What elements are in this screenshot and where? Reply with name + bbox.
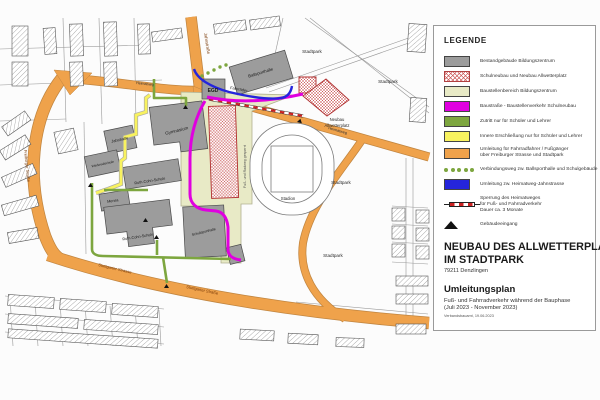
- legend-label: Umleitung zw. Heimatweg-Jahnstrasse: [480, 182, 564, 188]
- legend-item-verbindungsweg: Verbindungsweg zw. Ballsporthalle und Sc…: [444, 162, 595, 177]
- legend-item-innere-erschliessung: Innere Erschließung nur für Schüler und …: [444, 129, 595, 144]
- swatch-umleitung-heimatweg: [444, 179, 470, 190]
- swatch-baustrasse: [444, 101, 470, 112]
- label-stadtpark-2: Stadtpark: [378, 79, 398, 84]
- plan-address: 79211 Denzlingen: [444, 268, 595, 274]
- label-neubau-line2: Allwetterplatz: [325, 123, 350, 128]
- plan-description-2: (Juli 2023 - November 2023): [444, 305, 595, 311]
- label-stadtpark-4: Stadtpark: [323, 253, 343, 258]
- label-egd: EGD: [208, 88, 219, 94]
- legend-item-schulneubau: Schulneubau und Neubau Allwetterplatz: [444, 69, 595, 84]
- label-stadtpark-3: Stadtpark: [331, 180, 351, 185]
- legend-item-bestand: Bestandgebäude Bildungszentrum: [444, 54, 595, 69]
- label-stadtpark-1: Stadtpark: [302, 49, 322, 54]
- legend-panel: LEGENDE Bestandgebäude Bildungszentrum S…: [433, 25, 596, 331]
- plan-title-line2: IM STADTPARK: [444, 254, 595, 267]
- legend-item-zutritt: Zutritt nur für Schüler und Lehrer: [444, 114, 595, 129]
- swatch-verbindungsweg-dots: [444, 168, 474, 172]
- stadium: [250, 123, 334, 215]
- legend-label: Baustellenbereich Bildungszentrum: [480, 89, 557, 95]
- label-neubau-line1: Neubau: [330, 117, 345, 122]
- swatch-eingang-triangle-icon: [444, 221, 458, 229]
- plan-subtitle: Umleitungsplan: [444, 284, 595, 295]
- label-jahnstrasse: Jahnstraße: [203, 32, 211, 55]
- legend-item-baustellenbereich: Baustellenbereich Bildungszentrum: [444, 84, 595, 99]
- legend-item-baustrasse: Baustraße - Baustellenverkehr Schulneuba…: [444, 99, 595, 114]
- umleitungsplan-sheet: { "legend": { "title": "LEGENDE", "items…: [0, 0, 600, 400]
- legend-item-umleitung-fuss: Umleitung für Fahrradfahrer / Fußgänger …: [444, 144, 595, 162]
- legend-item-sperrung: Sperrung des Heimatweges für Fuß- und Fa…: [444, 192, 595, 217]
- legend-label: Gebäudeeingang: [480, 222, 518, 228]
- swatch-bestand: [444, 56, 470, 67]
- legend-label: Bestandgebäude Bildungszentrum: [480, 59, 555, 65]
- legend-label: Schulneubau und Neubau Allwetterplatz: [480, 74, 567, 80]
- swatch-zutritt: [444, 116, 470, 127]
- verbindungsweg-dots: [200, 63, 227, 77]
- schulneubau-area: [208, 106, 238, 199]
- legend-title: LEGENDE: [444, 36, 595, 45]
- legend-label: Zutritt nur für Schüler und Lehrer: [480, 119, 551, 125]
- allwetterplatz-neubau: [299, 77, 349, 116]
- legend-label: Verbindungsweg zw. Ballsporthalle und Sc…: [480, 167, 597, 173]
- swatch-umleitung-fuss: [444, 148, 470, 159]
- plan-description-1: Fuß- und Fahrradverkehr während der Baup…: [444, 298, 595, 304]
- plan-stamp: Verbandsbauamt, 19.06.2023: [444, 314, 595, 318]
- legend-label: Innere Erschließung nur für Schüler und …: [480, 134, 582, 140]
- legend-label: Sperrung des Heimatweges für Fuß- und Fa…: [480, 196, 542, 214]
- legend-item-umleitung-heimatweg: Umleitung zw. Heimatweg-Jahnstrasse: [444, 177, 595, 192]
- legend-item-eingang: Gebäudeeingang: [444, 217, 595, 233]
- legend-label: Baustraße - Baustellenverkehr Schulneuba…: [480, 104, 576, 110]
- title-block: NEUBAU DES ALLWETTERPLATZES IM STADTPARK…: [444, 241, 595, 318]
- legend-label: Umleitung für Fahrradfahrer / Fußgänger …: [480, 147, 568, 159]
- swatch-schulneubau: [444, 71, 470, 82]
- label-weg-gesperrt: Fuß- und Radweg gesperrt: [243, 145, 247, 188]
- swatch-sperrung-barrier: [444, 202, 480, 207]
- swatch-baustellenbereich: [444, 86, 470, 97]
- label-stadion: Stadion: [281, 196, 296, 201]
- plan-title-line1: NEUBAU DES ALLWETTERPLATZES: [444, 241, 595, 254]
- swatch-innere: [444, 131, 470, 142]
